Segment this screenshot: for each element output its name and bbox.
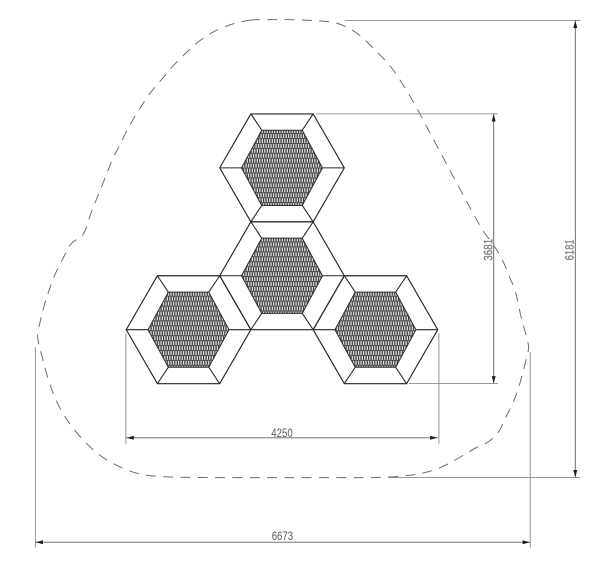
svg-text:4250: 4250 — [271, 426, 293, 440]
svg-text:6673: 6673 — [272, 529, 294, 543]
svg-text:3681: 3681 — [481, 239, 495, 261]
svg-text:6181: 6181 — [563, 239, 577, 260]
